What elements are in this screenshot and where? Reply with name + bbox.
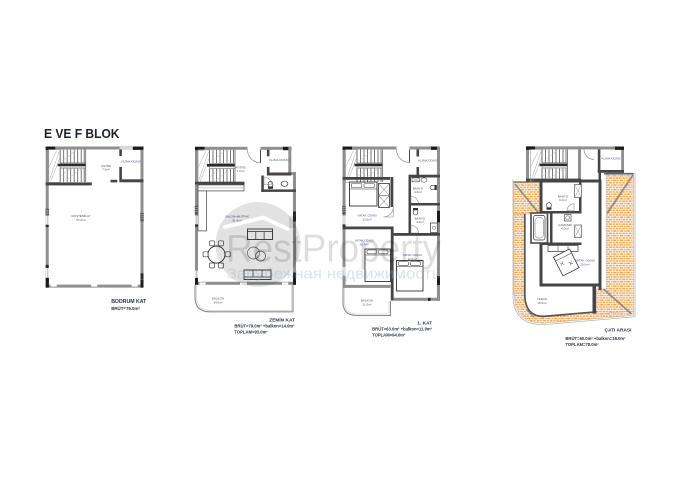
svg-text:11.0m²: 11.0m² <box>362 302 371 306</box>
svg-text:BRÜT=79.0m²: BRÜT=79.0m² <box>111 306 140 311</box>
svg-text:6.0m²: 6.0m² <box>559 198 567 202</box>
svg-text:TOPLAM=93.0m²: TOPLAM=93.0m² <box>234 329 268 334</box>
svg-text:4.0m²: 4.0m² <box>561 227 569 231</box>
svg-text:7.0m²: 7.0m² <box>237 169 245 173</box>
svg-text:7.0m²: 7.0m² <box>102 167 110 171</box>
svg-text:1. KAT: 1. KAT <box>417 320 432 326</box>
svg-text:RestProperty: RestProperty <box>226 228 441 271</box>
svg-text:BRÜT=60.0m² +balkon=18.0m²: BRÜT=60.0m² +balkon=18.0m² <box>565 336 626 341</box>
svg-text:15.0m²: 15.0m² <box>537 301 546 305</box>
svg-text:13.0m²: 13.0m² <box>362 217 371 221</box>
svg-text:14.0m²: 14.0m² <box>213 300 222 304</box>
svg-text:BRÜT=79.0m² +balkon=14.0m²: BRÜT=79.0m² +balkon=14.0m² <box>234 324 295 329</box>
svg-text:E VE F BLOK: E VE F BLOK <box>44 126 120 141</box>
svg-text:20.0m²: 20.0m² <box>580 262 589 266</box>
svg-text:4.6m²: 4.6m² <box>414 190 422 194</box>
svg-text:ZEMİN KAT: ZEMİN KAT <box>269 316 295 323</box>
svg-text:TOPLAM=94.0m²: TOPLAM=94.0m² <box>372 332 406 337</box>
svg-text:4.6m²: 4.6m² <box>416 220 424 224</box>
svg-text:Зарубежная недвижимость: Зарубежная недвижимость <box>227 266 441 283</box>
svg-text:KLİMA ODASI: KLİMA ODASI <box>601 156 620 161</box>
svg-text:BRÜT=63.0m² +balkon=11.0m²: BRÜT=63.0m² +balkon=11.0m² <box>372 327 433 332</box>
svg-text:KLİMA ODASI: KLİMA ODASI <box>121 159 140 164</box>
svg-text:57.0m²: 57.0m² <box>76 218 85 222</box>
svg-text:ÇATI ARASI: ÇATI ARASI <box>605 328 633 334</box>
svg-text:TOPLAM=78.0m²: TOPLAM=78.0m² <box>565 342 599 347</box>
svg-text:BODRUM KAT: BODRUM KAT <box>111 299 147 305</box>
svg-text:KLİMA ODASI: KLİMA ODASI <box>269 157 288 162</box>
svg-text:KLİMA ODASI: KLİMA ODASI <box>418 158 437 163</box>
